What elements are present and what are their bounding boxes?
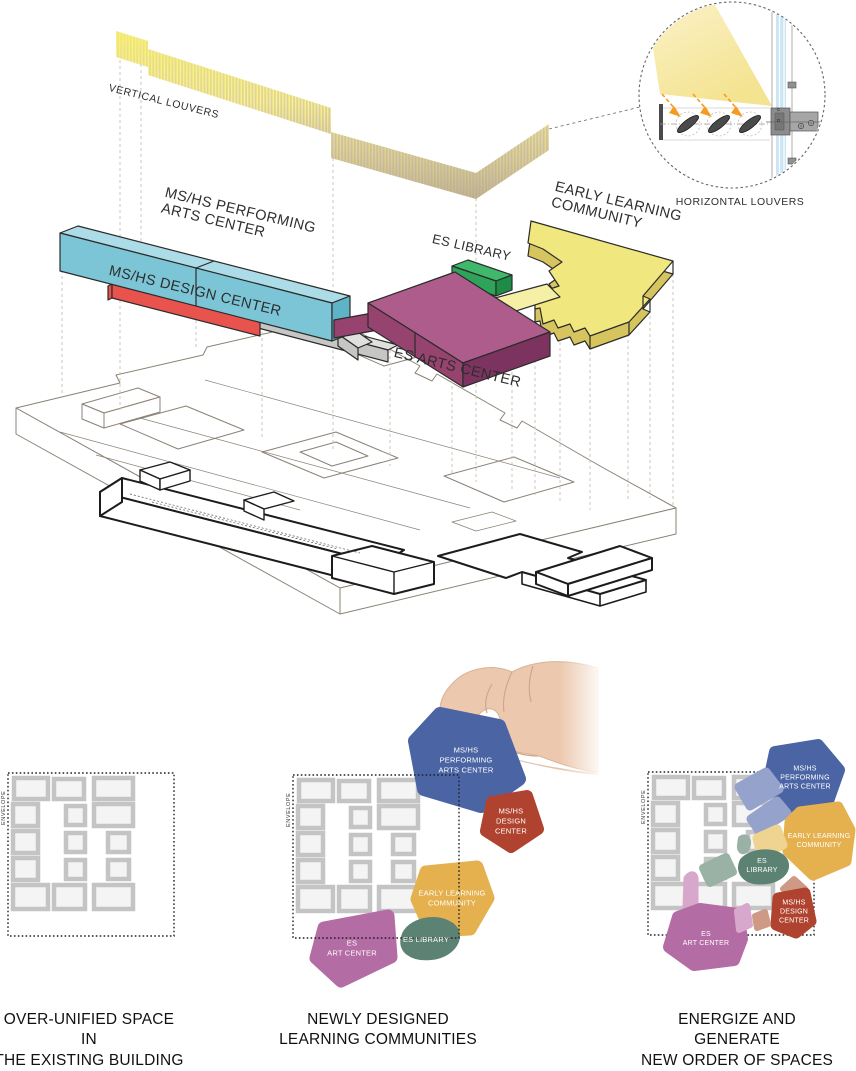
blob-sage-small [739,836,749,852]
louver-blades [675,112,762,136]
clamp-bracket [766,108,824,135]
blob-label-art: ES ART CENTER [312,938,392,958]
blob-label-art: ES ART CENTER [666,930,746,948]
blob-label-elc: EARLY LEARNING COMMUNITY [412,888,492,908]
room-grid [298,780,418,911]
blob-label-design: MS/HS DESIGN CENTER [476,806,546,835]
blob-label-elc: EARLY LEARNING COMMUNITY [780,832,856,850]
caption-existing: OVER-UNIFIED SPACE IN THE EXISTING BUILD… [0,1010,184,1071]
blob-label-design: MS/HS DESIGN CENTER [764,898,824,925]
horizontal-louvers-label: HORIZONTAL LOUVERS [655,197,825,209]
panel-existing [8,773,174,936]
envelope-label: ENVELOPE [286,777,292,827]
caption-new-order: ENERGIZE AND GENERATE NEW ORDER OF SPACE… [637,1010,837,1071]
blob-label-performing: MS/HS PERFORMING ARTS CENTER [421,745,511,774]
envelope-label: ENVELOPE [641,774,647,824]
room-grid [13,778,133,909]
vertical-louver-ribbon [116,31,549,199]
glass-marking: C D [777,105,780,127]
caption-communities: NEWLY DESIGNED LEARNING COMMUNITIES [278,1010,478,1051]
sun-beam [648,3,772,106]
blob-label-library: ES LIBRARY [386,935,466,945]
louver-detail-circle [639,2,825,188]
mullion-anchor-top [788,82,796,88]
panel-communities [293,656,604,981]
curtain-wall-section [766,2,824,188]
blob-label-performing: MS/HS PERFORMING ARTS CENTER [765,764,845,791]
louver-end-bracket [659,104,663,140]
detail-leader-line [549,107,640,129]
envelope-label: ENVELOPE [1,775,7,825]
blob-label-library: ES LIBRARY [732,857,792,875]
blob-salmon [783,879,805,889]
blob-art-annex [737,906,750,930]
